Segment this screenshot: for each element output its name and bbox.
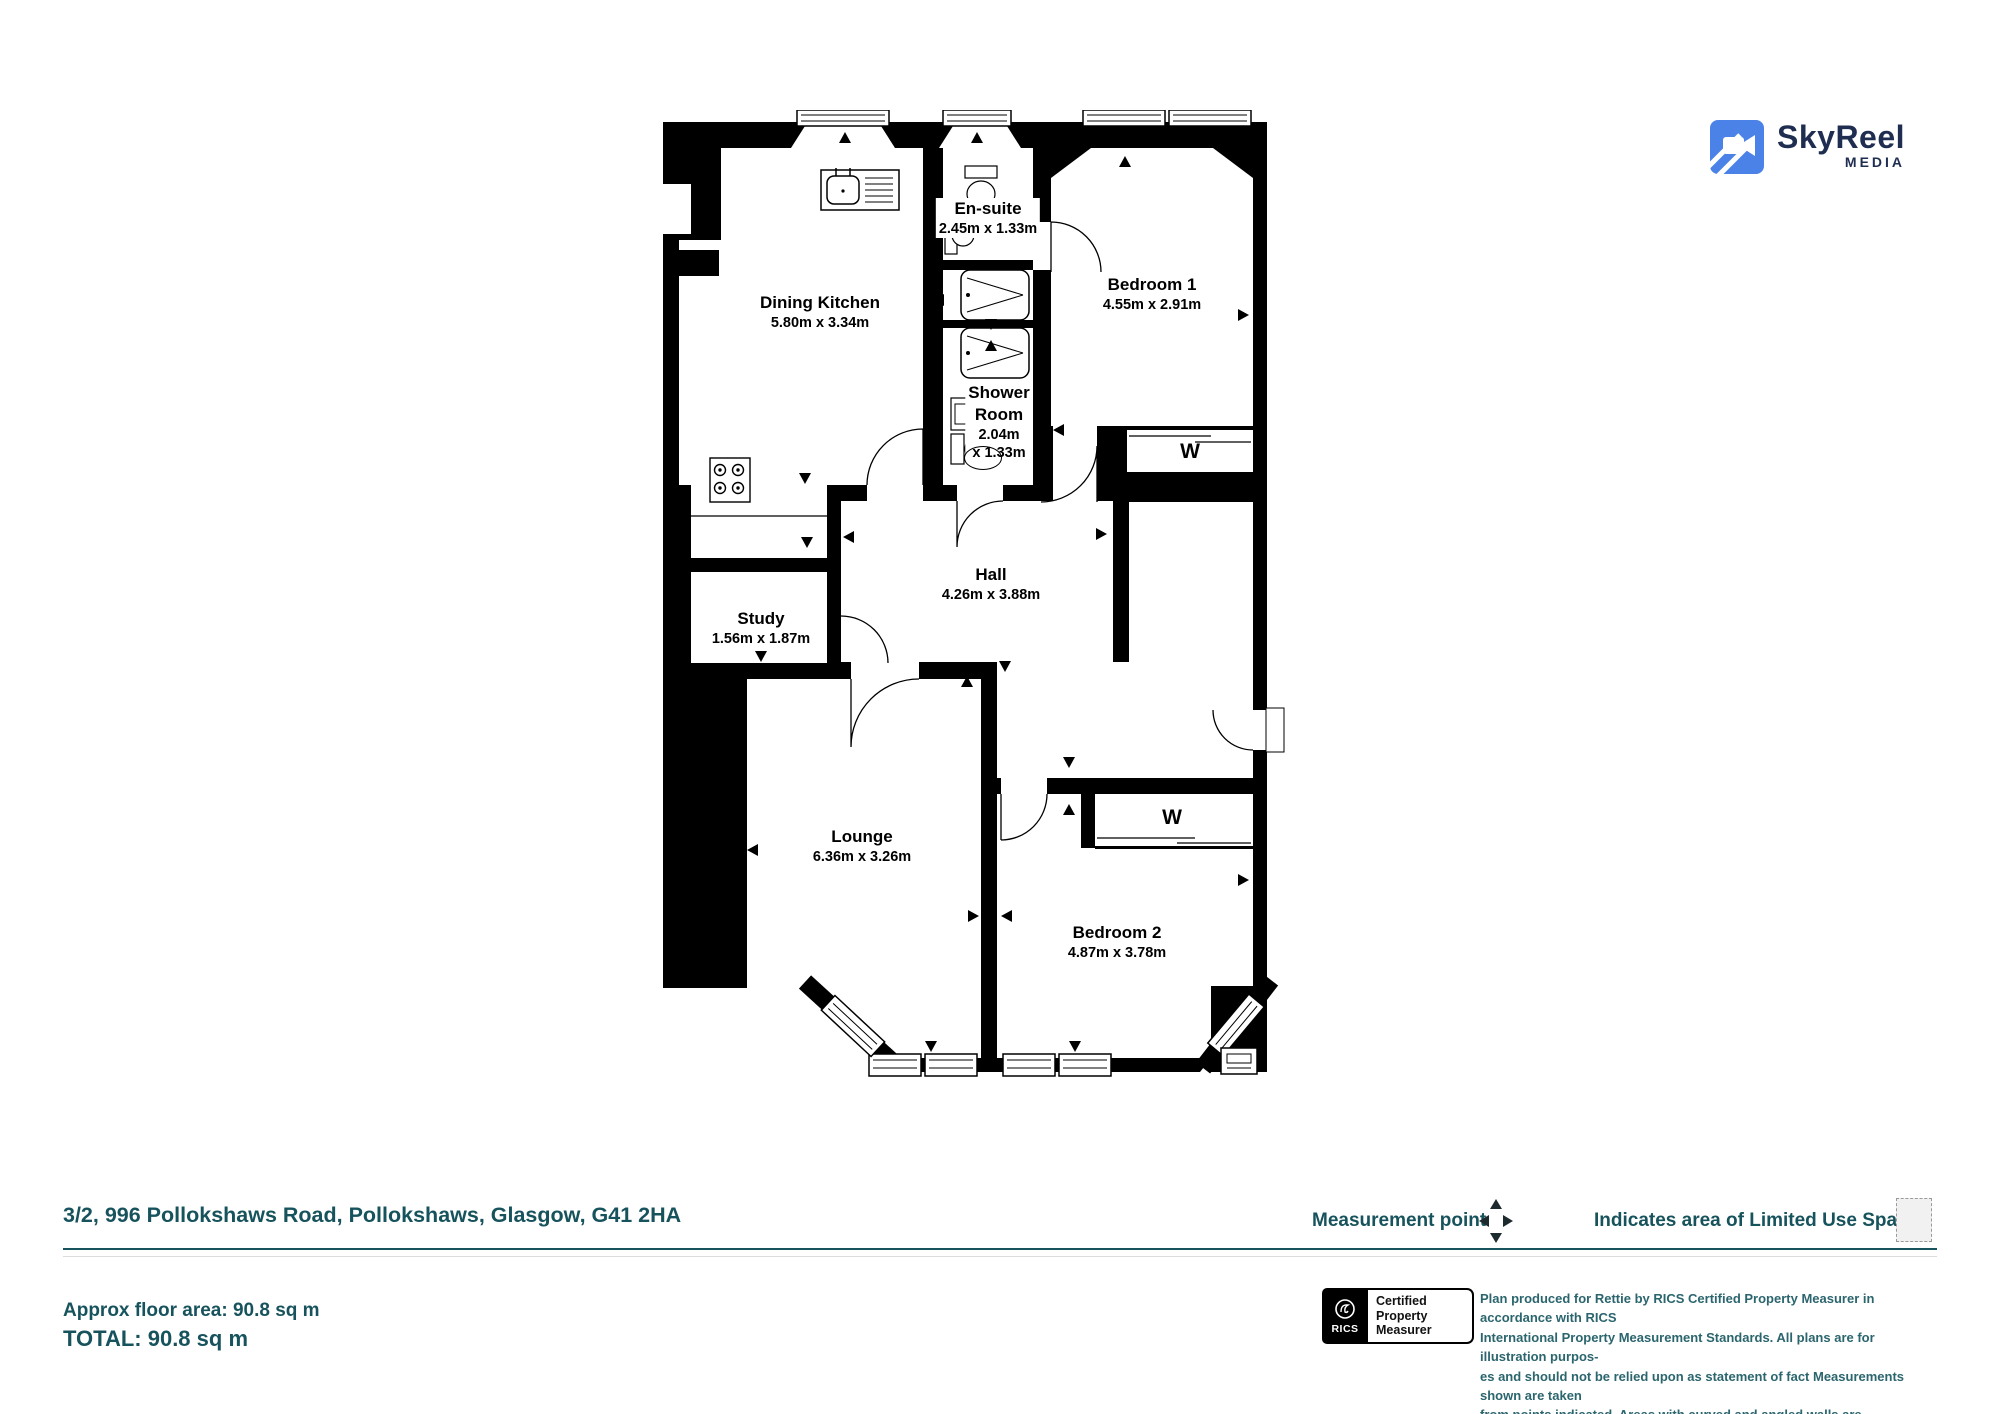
rics-badge: RICS Certified Property Measurer: [1322, 1288, 1474, 1344]
hob-icon: [710, 458, 750, 502]
rics-line-3: Measurer: [1376, 1323, 1472, 1338]
kitchen-window-icon: [797, 110, 889, 126]
logo-brand: SkyReel: [1777, 120, 1905, 154]
kitchen-sink-icon: [821, 168, 899, 210]
entry-landing: [1266, 708, 1284, 752]
logo-subtitle: MEDIA: [1845, 154, 1905, 170]
rics-logo: RICS: [1322, 1288, 1368, 1344]
footer-divider: [63, 1248, 1937, 1250]
small-rear-window-icon: [1221, 1048, 1257, 1074]
wardrobe-label-bedroom-1: W: [1180, 440, 1200, 464]
disclaimer-line-2: International Property Measurement Stand…: [1480, 1328, 1942, 1367]
rics-lion-icon: [1333, 1297, 1357, 1321]
rics-line-1: Certified: [1376, 1294, 1472, 1309]
rics-line-2: Property: [1376, 1309, 1472, 1324]
skyreel-camera-icon: [1710, 120, 1764, 174]
disclaimer-line-4: from points indicated. Areas with curved…: [1480, 1405, 1942, 1414]
property-address: 3/2, 996 Pollokshaws Road, Pollokshaws, …: [63, 1203, 681, 1228]
measurement-point-oval-icon: [964, 446, 1002, 470]
measurement-point-compass-icon: [1478, 1198, 1514, 1249]
limited-use-legend-label: Indicates area of Limited Use Space: [1594, 1210, 1918, 1232]
disclaimer-text: Plan produced for Rettie by RICS Certifi…: [1480, 1289, 1942, 1414]
room-label-hall: Hall 4.26m x 3.88m: [942, 564, 1040, 604]
skyreel-logo: SkyReel MEDIA: [1710, 120, 1905, 174]
floor-plan-drawing: [655, 110, 1315, 1190]
room-label-dining-kitchen: Dining Kitchen 5.80m x 3.34m: [760, 292, 880, 332]
rics-certification-text: Certified Property Measurer: [1368, 1288, 1474, 1344]
disclaimer-line-1: Plan produced for Rettie by RICS Certifi…: [1480, 1289, 1942, 1328]
disclaimer-line-3: es and should not be relied upon as stat…: [1480, 1367, 1942, 1406]
measurement-point-legend-label: Measurement point: [1312, 1210, 1486, 1232]
room-label-en-suite: En-suite 2.45m x 1.33m: [936, 198, 1040, 238]
room-label-study: Study 1.56m x 1.87m: [712, 608, 810, 648]
floorplan-page: SkyReel MEDIA: [0, 0, 2000, 1414]
wardrobe-label-bedroom-2: W: [1162, 806, 1182, 830]
room-label-bedroom-1: Bedroom 1 4.55m x 2.91m: [1103, 274, 1201, 314]
wall-notch: [663, 184, 691, 234]
rics-org-label: RICS: [1331, 1323, 1358, 1335]
total-floor-area: TOTAL: 90.8 sq m: [63, 1326, 248, 1352]
floor-plan: Dining Kitchen 5.80m x 3.34m En-suite 2.…: [655, 110, 1315, 1190]
room-label-bedroom-2: Bedroom 2 4.87m x 3.78m: [1068, 922, 1166, 962]
limited-use-swatch-icon: [1896, 1198, 1932, 1242]
footer-divider-light: [63, 1256, 1937, 1257]
room-label-lounge: Lounge 6.36m x 3.26m: [813, 826, 911, 866]
ensuite-window-icon: [943, 110, 1011, 126]
approx-floor-area: Approx floor area: 90.8 sq m: [63, 1300, 320, 1322]
